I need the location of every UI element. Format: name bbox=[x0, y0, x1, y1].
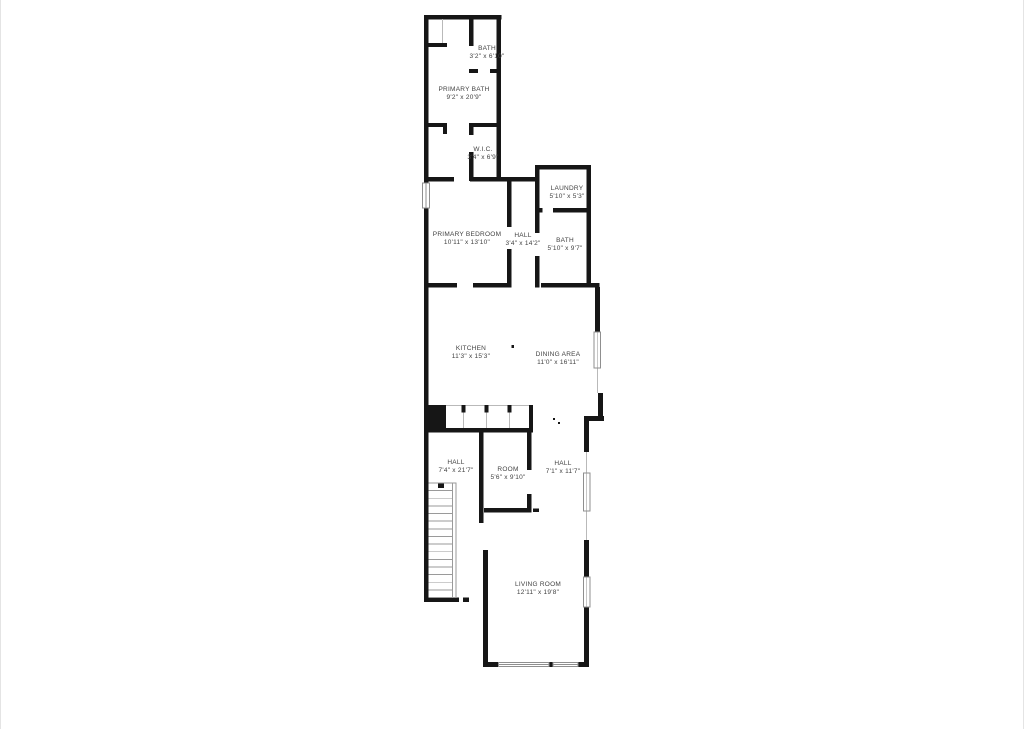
room-label-hall-lower-right: HALL7'1" x 11'7" bbox=[546, 460, 581, 476]
room-dimensions: 5'10" x 9'7" bbox=[547, 245, 582, 253]
room-label-living-room: LIVING ROOM12'11" x 19'8" bbox=[515, 581, 561, 597]
room-label-bath-upper: BATH3'2" x 6'10" bbox=[469, 45, 504, 61]
room-name: ROOM bbox=[490, 466, 525, 474]
room-name: BATH bbox=[469, 45, 504, 53]
room-name: W.I.C. bbox=[467, 146, 498, 154]
room-dimensions: 3'4" x 6'9" bbox=[467, 154, 498, 162]
room-dimensions: 11'3" x 15'3" bbox=[452, 353, 490, 361]
room-name: PRIMARY BATH bbox=[438, 86, 489, 94]
room-label-room: ROOM5'6" x 9'10" bbox=[490, 466, 525, 482]
floorplan-page: BATH3'2" x 6'10"PRIMARY BATH9'2" x 20'9"… bbox=[0, 0, 1024, 729]
room-dimensions: 9'2" x 20'9" bbox=[438, 94, 489, 102]
room-name: LIVING ROOM bbox=[515, 581, 561, 589]
room-dimensions: 5'10" x 5'3" bbox=[549, 193, 584, 201]
room-label-hall-upper: HALL3'4" x 14'2" bbox=[505, 232, 540, 248]
room-name: LAUNDRY bbox=[549, 185, 584, 193]
room-dimensions: 12'11" x 19'8" bbox=[515, 589, 561, 597]
room-label-bath-middle: BATH5'10" x 9'7" bbox=[547, 237, 582, 253]
room-label-kitchen: KITCHEN11'3" x 15'3" bbox=[452, 345, 490, 361]
room-dimensions: 3'2" x 6'10" bbox=[469, 53, 504, 61]
room-dimensions: 7'4" x 21'7" bbox=[438, 467, 473, 475]
room-label-hall-lower-left: HALL7'4" x 21'7" bbox=[438, 459, 473, 475]
room-labels: BATH3'2" x 6'10"PRIMARY BATH9'2" x 20'9"… bbox=[1, 0, 1023, 729]
room-label-primary-bath: PRIMARY BATH9'2" x 20'9" bbox=[438, 86, 489, 102]
room-name: HALL bbox=[438, 459, 473, 467]
room-name: PRIMARY BEDROOM bbox=[433, 231, 502, 239]
room-label-laundry: LAUNDRY5'10" x 5'3" bbox=[549, 185, 584, 201]
room-dimensions: 5'6" x 9'10" bbox=[490, 474, 525, 482]
room-name: HALL bbox=[546, 460, 581, 468]
room-dimensions: 11'0" x 16'11" bbox=[536, 359, 581, 367]
room-label-primary-bedroom: PRIMARY BEDROOM10'11" x 13'10" bbox=[433, 231, 502, 247]
room-dimensions: 10'11" x 13'10" bbox=[433, 239, 502, 247]
room-dimensions: 3'4" x 14'2" bbox=[505, 240, 540, 248]
room-name: KITCHEN bbox=[452, 345, 490, 353]
room-label-dining-area: DINING AREA11'0" x 16'11" bbox=[536, 351, 581, 367]
room-label-wic: W.I.C.3'4" x 6'9" bbox=[467, 146, 498, 162]
room-name: DINING AREA bbox=[536, 351, 581, 359]
room-name: BATH bbox=[547, 237, 582, 245]
room-dimensions: 7'1" x 11'7" bbox=[546, 468, 581, 476]
room-name: HALL bbox=[505, 232, 540, 240]
